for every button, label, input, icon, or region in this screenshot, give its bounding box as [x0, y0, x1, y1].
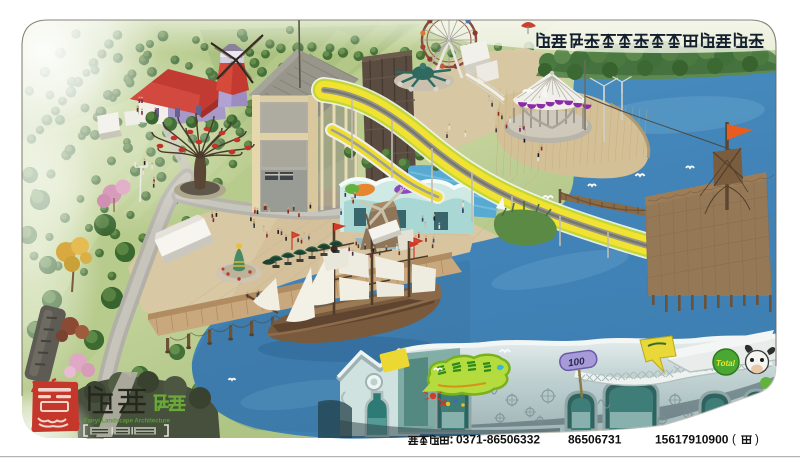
svg-text:): )	[755, 434, 759, 446]
svg-text:15617910900: 15617910900	[655, 433, 729, 447]
svg-text:(: (	[732, 434, 736, 446]
svg-text:Fanyi Landscape Architecture: Fanyi Landscape Architecture	[84, 418, 171, 425]
svg-text:86506731: 86506731	[568, 433, 622, 447]
svg-text:0371-86506332: 0371-86506332	[456, 433, 540, 447]
svg-text:Total: Total	[716, 359, 736, 368]
